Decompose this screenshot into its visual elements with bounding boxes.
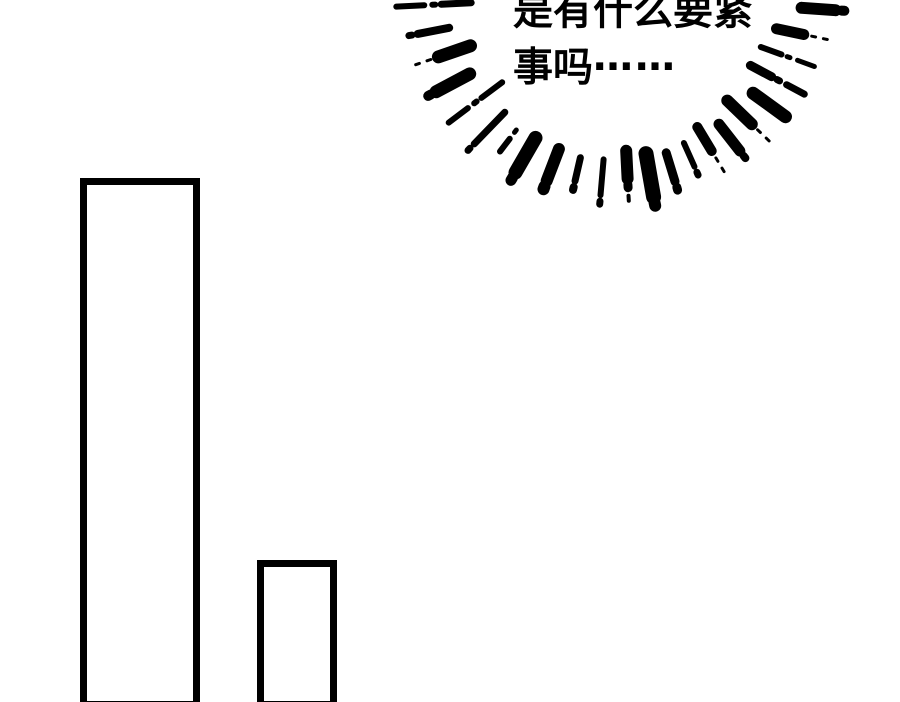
speech-text: 是有什么要紧 事吗……: [513, 0, 803, 90]
speech-line-2-text: 事吗: [513, 44, 593, 90]
speech-line-2: 事吗……: [513, 34, 803, 90]
tall-rectangle-shape: [80, 178, 200, 702]
speech-ellipsis: ……: [593, 34, 677, 80]
short-rectangle-shape: [257, 560, 337, 702]
comic-panel: 是有什么要紧 事吗……: [0, 0, 900, 702]
speech-line-1: 是有什么要紧: [513, 0, 803, 34]
